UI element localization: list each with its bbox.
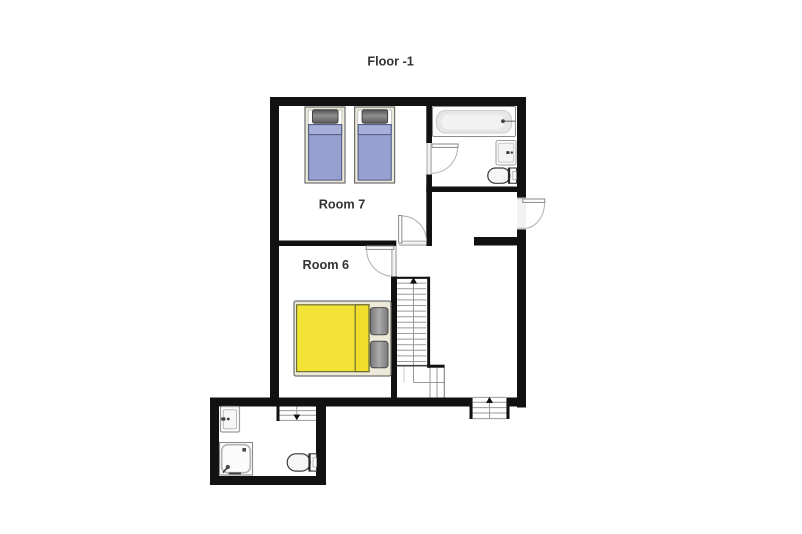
svg-text:Room 7: Room 7 bbox=[319, 197, 366, 211]
svg-text:Room 6: Room 6 bbox=[303, 258, 350, 272]
svg-text:Floor -1: Floor -1 bbox=[367, 55, 414, 69]
